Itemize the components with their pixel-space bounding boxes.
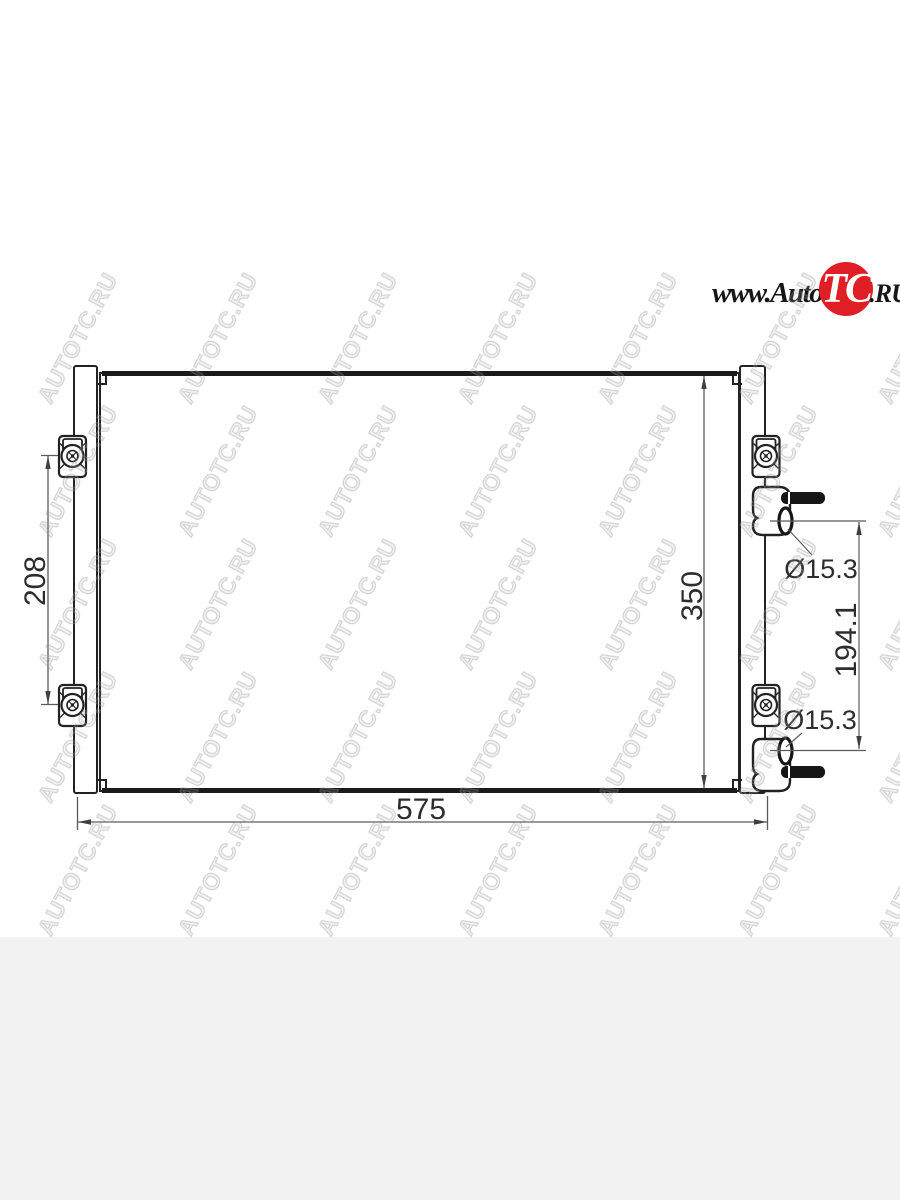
upper-pipe xyxy=(781,492,825,504)
dimension-label-194-1: 194.1 xyxy=(830,602,863,677)
mounting-bracket-top-left xyxy=(59,436,86,477)
port-diameter-label-upper: Ø15.3 xyxy=(784,554,858,584)
mounting-bracket-top-right xyxy=(753,436,780,477)
lower-pipe xyxy=(781,766,825,778)
dimension-label-575: 575 xyxy=(396,793,446,826)
condenser-technical-drawing: 208 350 194.1 575 Ø15.3 xyxy=(0,0,900,1200)
upper-pipe-fitting xyxy=(753,487,825,535)
left-side-rail xyxy=(74,366,97,793)
mounting-bracket-bottom-left xyxy=(59,685,86,726)
right-side-rail xyxy=(740,366,765,793)
screenshot-root: www.AutoTC.RU xyxy=(0,0,900,1200)
mounting-bracket-bottom-right xyxy=(753,685,780,726)
port-diameter-label-lower: Ø15.3 xyxy=(783,705,857,735)
dimension-label-208: 208 xyxy=(19,556,52,606)
lower-pipe-fitting xyxy=(753,738,825,791)
upper-port-leader xyxy=(788,529,812,555)
condenser-core xyxy=(97,373,742,791)
dimension-label-350: 350 xyxy=(676,571,709,621)
